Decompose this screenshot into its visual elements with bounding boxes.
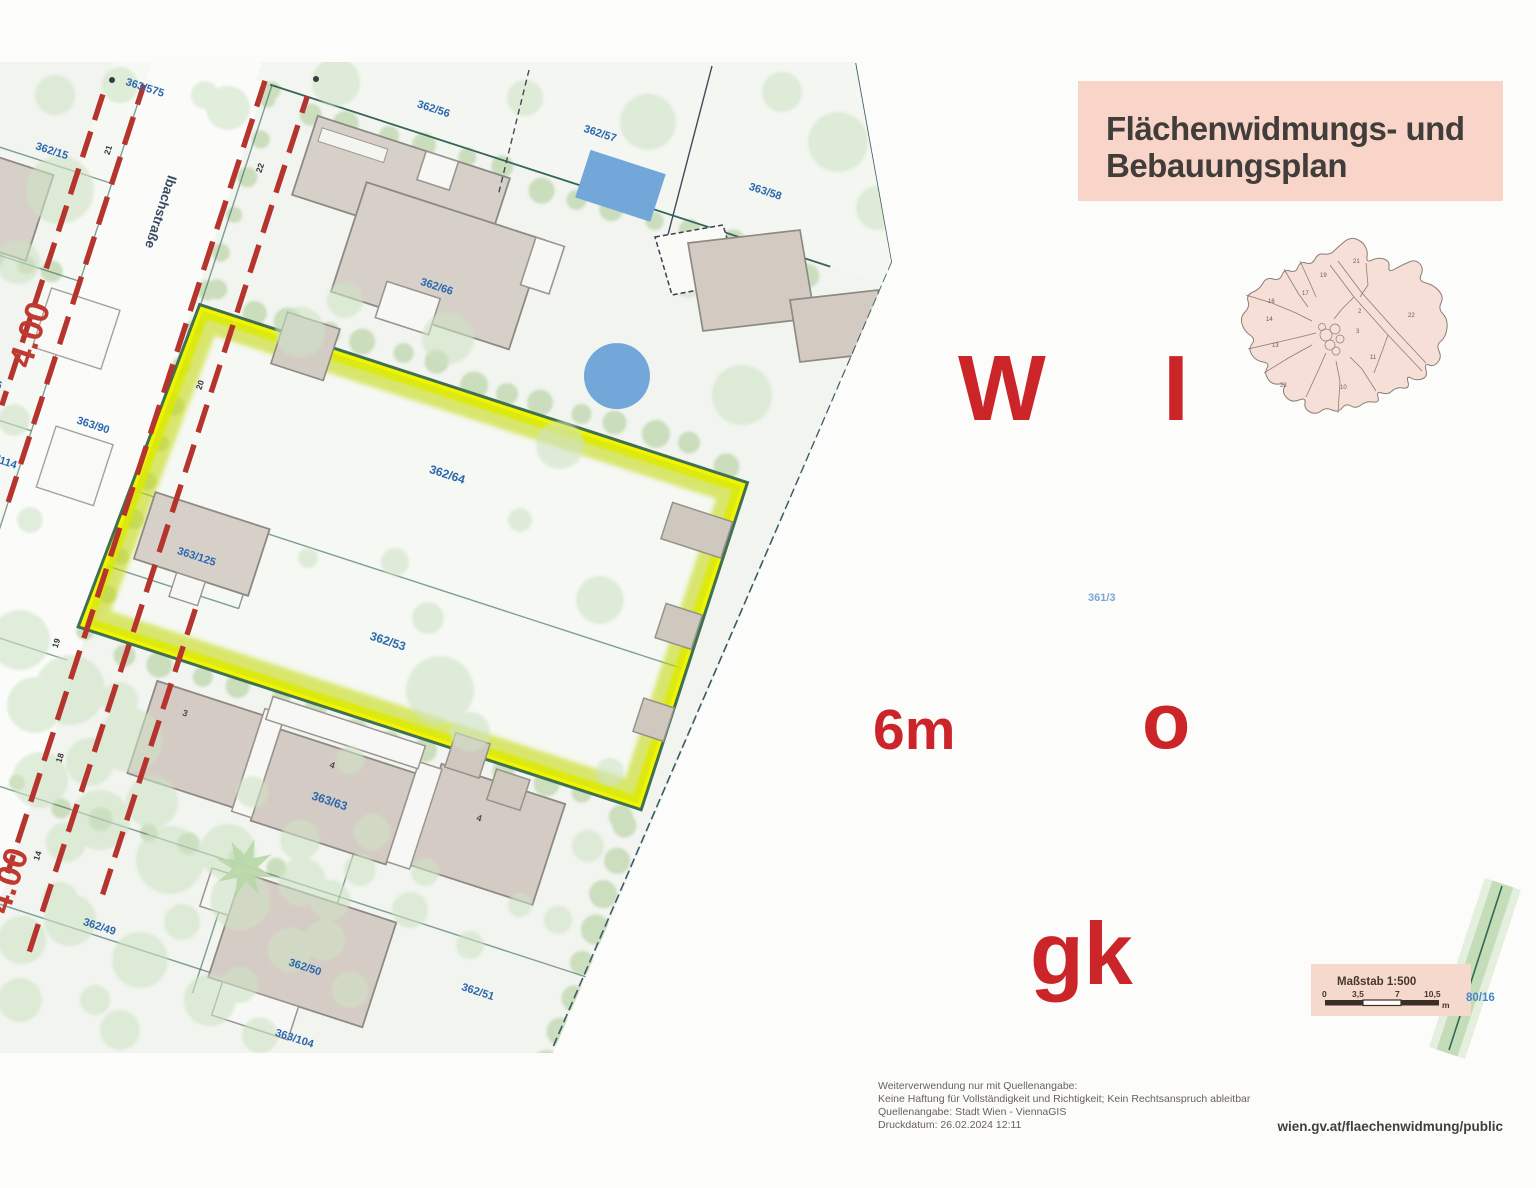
svg-text:19: 19 [1320, 273, 1327, 279]
svg-text:10: 10 [1340, 385, 1347, 391]
svg-text:14: 14 [1266, 317, 1273, 323]
svg-text:17: 17 [1302, 291, 1309, 297]
svg-text:3,5: 3,5 [1352, 989, 1364, 999]
svg-text:0: 0 [1322, 989, 1327, 999]
svg-text:10,5: 10,5 [1424, 989, 1441, 999]
svg-text:m: m [1442, 1000, 1450, 1010]
svg-text:Maßstab 1:500: Maßstab 1:500 [1337, 976, 1416, 988]
svg-text:22: 22 [1408, 313, 1415, 319]
svg-text:16: 16 [1268, 299, 1275, 305]
svg-text:21: 21 [1353, 259, 1360, 265]
svg-text:23: 23 [1280, 383, 1287, 389]
svg-text:11: 11 [1370, 355, 1377, 361]
svg-text:13: 13 [1272, 343, 1279, 349]
svg-text:7: 7 [1395, 989, 1400, 999]
